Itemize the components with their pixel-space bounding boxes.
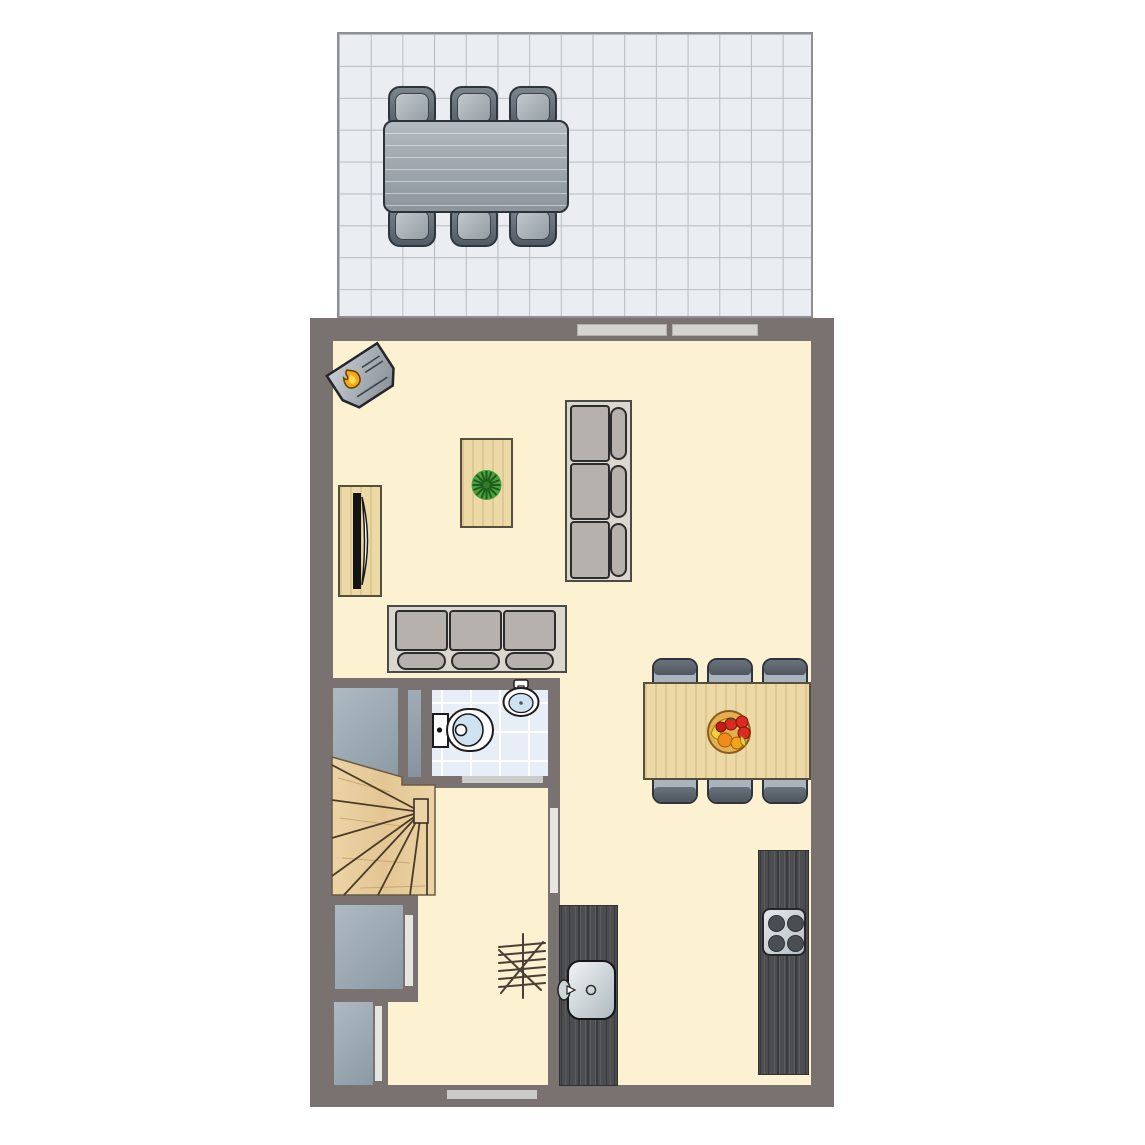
sofa-horizontal-3seat xyxy=(387,605,567,673)
cooktop-icon xyxy=(762,908,806,956)
sliding-door-panel xyxy=(672,324,758,336)
closet-lower xyxy=(334,1002,373,1085)
sofa-back-cushion xyxy=(451,652,500,670)
dining-table xyxy=(643,682,811,780)
burner xyxy=(768,915,785,932)
sofa-seat xyxy=(570,521,610,579)
burner xyxy=(787,915,804,932)
kitchen-sink-icon xyxy=(556,955,620,1025)
bathroom-door-threshold xyxy=(462,776,543,783)
winder-staircase xyxy=(330,748,440,898)
sofa-vertical-3seat xyxy=(565,400,632,582)
burner xyxy=(768,935,785,952)
wall-bottom xyxy=(310,1085,834,1107)
radiator-icon xyxy=(496,930,548,1002)
closet-door-marker xyxy=(375,1006,382,1081)
sliding-door-panel xyxy=(577,324,667,336)
hallway-door-marker xyxy=(550,808,558,893)
floor-plan xyxy=(0,0,1145,1145)
plant-icon xyxy=(462,440,511,526)
sofa-seat xyxy=(503,610,556,651)
toilet-icon xyxy=(433,709,493,751)
wall-left xyxy=(310,318,333,1107)
entrance-door-threshold xyxy=(447,1090,537,1099)
outdoor-dining-table xyxy=(383,120,569,213)
sink-icon xyxy=(504,680,539,716)
bathroom-fixtures xyxy=(430,676,552,782)
tv-icon xyxy=(340,487,380,595)
kitchen-counter-right xyxy=(758,850,809,1075)
sofa-seat xyxy=(395,610,448,651)
sofa-back-cushion xyxy=(505,652,554,670)
sofa-seat xyxy=(570,463,610,520)
sofa-seat xyxy=(449,610,502,651)
sofa-back-cushion xyxy=(610,407,627,460)
wall-right xyxy=(811,318,834,1107)
sofa-back-cushion xyxy=(610,465,627,518)
sofa-back-cushion xyxy=(610,523,627,577)
fruit-bowl-icon xyxy=(645,684,809,778)
burner xyxy=(787,935,804,952)
stair-newel-post xyxy=(414,799,428,823)
closet-door-marker xyxy=(405,915,413,986)
tv-cabinet xyxy=(338,485,382,597)
sofa-seat xyxy=(570,405,610,462)
sofa-back-cushion xyxy=(397,652,446,670)
coffee-table xyxy=(460,438,513,528)
closet-upper xyxy=(335,905,403,989)
